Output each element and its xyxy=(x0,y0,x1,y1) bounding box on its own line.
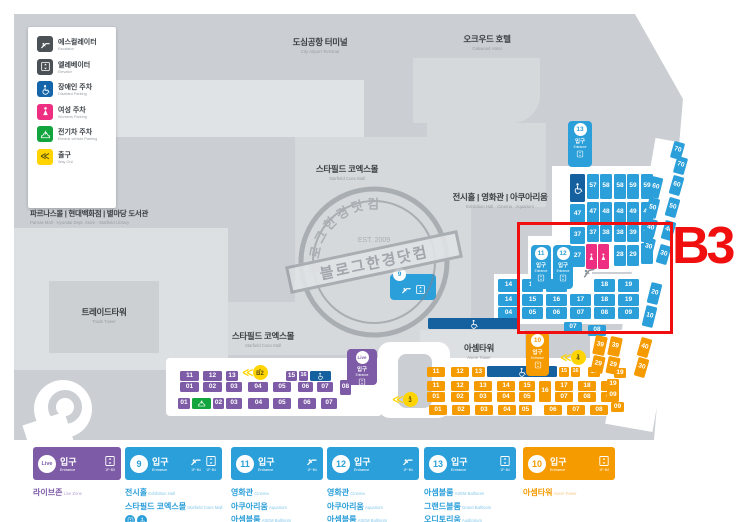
desc-en: Auditorium xyxy=(461,518,482,522)
banner-number: 9 xyxy=(130,455,148,473)
legend-label-ko: 전기차 주차 xyxy=(58,127,97,137)
escalator-icon: 1F~B4 xyxy=(190,455,202,472)
parking-cell: 04 xyxy=(248,382,268,392)
map-label-en: Oakwood Hotel xyxy=(463,46,510,51)
footer-banner-13: 13입구Entrance1F~B4 xyxy=(424,447,516,480)
exit-number: «B2 xyxy=(253,365,268,380)
map-label-en: Trade Tower xyxy=(81,319,126,324)
desc-en: ASEM Ballroom xyxy=(260,518,291,522)
parking-cell: 02 xyxy=(451,392,469,402)
entry-label-en: Entrance xyxy=(550,468,595,472)
elevator-icon xyxy=(576,150,584,158)
parking-cell: 48 xyxy=(600,202,612,223)
desc-ko: 아쿠아리움 xyxy=(231,502,268,511)
parking-cell: 48 xyxy=(614,202,626,223)
parking-cell: 58 xyxy=(614,174,626,199)
desc-ko: 영화관 xyxy=(327,488,349,497)
parking-cell: 09 xyxy=(611,402,624,412)
entry-label-en: Entrance xyxy=(574,145,587,149)
map-label-ko: 아셈타워 xyxy=(464,342,494,354)
map-label: 오크우드 호텔Oakwood Hotel xyxy=(463,33,510,51)
parking-cell: 15 xyxy=(519,381,535,391)
map-label-en: City Airport Terminal xyxy=(293,49,348,54)
parking-cell: 02 xyxy=(452,405,470,415)
parking-cell: 01 xyxy=(427,392,445,402)
parking-cell: 58 xyxy=(600,174,612,199)
exit-icon: ≪ xyxy=(37,149,53,165)
footer-desc-9: 전시홀 Exhibition Hall스타필드 코엑스몰 Starfield C… xyxy=(125,486,222,522)
exit-number: «4 xyxy=(571,350,586,365)
parking-cell: 16 xyxy=(539,381,551,402)
parking-cell: 07 xyxy=(321,398,337,409)
desc-en: Cinema xyxy=(349,491,365,496)
disabled-parking-cell xyxy=(310,371,331,381)
exit-chevrons-icon: ≪ xyxy=(242,366,252,379)
desc-ko: 전시홀 xyxy=(125,488,147,497)
elevator-icon xyxy=(358,378,366,386)
parking-cell: 59 xyxy=(627,174,639,199)
parking-cell: 01 xyxy=(429,405,447,415)
parking-cell: 06 xyxy=(544,405,562,415)
entry-label-ko: 입구 xyxy=(60,455,101,468)
desc-en: Starfield Coex Mall xyxy=(186,505,222,510)
parking-cell: 57 xyxy=(587,174,599,199)
parking-cell: 14 xyxy=(497,381,515,391)
banner-number: 10 xyxy=(528,455,546,473)
disabled-parking-cell xyxy=(570,174,585,202)
desc-en: Aquarium xyxy=(364,505,383,510)
parking-cell: 03 xyxy=(226,382,242,392)
elevator-icon xyxy=(534,361,542,369)
elevator-icon: 1F~B4 xyxy=(598,455,610,472)
building-oakwood-hotel xyxy=(413,58,540,123)
parking-cell: 19 xyxy=(614,368,626,378)
parking-cell: 11 xyxy=(180,371,199,381)
footer-desc-10: 아셈타워 Asem Tower xyxy=(523,486,577,500)
parking-cell: 01 xyxy=(178,398,190,409)
parking-cell: 05 xyxy=(273,398,291,409)
legend-label-ko: 여성 주차 xyxy=(58,105,87,115)
parking-cell: 14 xyxy=(498,279,519,292)
banner-number: 13 xyxy=(429,455,447,473)
women-icon xyxy=(37,104,53,120)
banner-number: 12 xyxy=(332,455,350,473)
desc-ko: 아셈타워 xyxy=(523,488,552,497)
parking-cell: 14 xyxy=(498,294,519,306)
map-label: 도심공항 터미널City Airport Terminal xyxy=(293,36,348,54)
parking-cell: 15 xyxy=(286,371,297,381)
entrance-marker-13: 13입구Entrance xyxy=(568,121,592,167)
parking-cell: 49 xyxy=(627,202,639,223)
legend-label-en: Way Out xyxy=(58,160,73,164)
map-label-en: Starfield Coex Mall xyxy=(232,343,294,348)
parking-cell: 13 xyxy=(472,367,485,377)
map-label-en: Asem Tower xyxy=(464,355,494,360)
parking-cell: 18 xyxy=(578,381,596,391)
disabled-icon xyxy=(37,81,53,97)
desc-ko: 아셈볼룸 xyxy=(231,515,260,522)
footer-desc-13: 아셈볼룸 ASEM Ballroom그랜드볼룸 Grand Ballroom오디… xyxy=(424,486,491,522)
exit-number: «3 xyxy=(403,392,418,407)
desc-ko: 아셈볼룸 xyxy=(327,515,356,522)
entry-label-ko: 입구 xyxy=(451,455,496,468)
parking-cell: 07 xyxy=(567,405,585,415)
entry-label-ko: 입구 xyxy=(532,348,542,356)
legend-item-elevator: 엘레베이터Elevator xyxy=(37,59,116,75)
exit-badge-b2: ≪«B2 xyxy=(242,365,268,380)
map-label: 전시홀 | 영화관 | 아쿠아리움Exhibition Hall · Cinem… xyxy=(452,191,547,209)
parking-cell: 19 xyxy=(607,379,619,389)
desc-ko: 그랜드볼룸 xyxy=(424,502,461,511)
entry-label-en: Entrance xyxy=(258,468,303,472)
legend-item-disabled: 장애인 주차Disabled Parking xyxy=(37,81,116,97)
map-label: 아셈타워Asem Tower xyxy=(464,342,494,360)
parking-cell: 03 xyxy=(474,392,492,402)
escalator-icon: 1F~B4 xyxy=(402,455,414,472)
desc-en: Exhibition Hall xyxy=(147,491,175,496)
parking-cell: 04 xyxy=(497,392,515,402)
map-label: 트레이드타워Trade Tower xyxy=(81,306,126,324)
entry-label-en: Entrance xyxy=(152,468,187,472)
exit-chevrons-icon: ≪ xyxy=(392,393,402,406)
map-label-ko: 스타필드 코엑스몰 xyxy=(232,330,294,342)
map-label-ko: 스타필드 코엑스몰 xyxy=(316,163,378,175)
entry-label-ko: 입구 xyxy=(258,455,303,468)
desc-en: ASEM Ballroom xyxy=(453,491,484,496)
legend-label-en: Disabled Parking xyxy=(58,92,92,96)
footer-banner-9: 9입구Entrance1F~B41F~B4 xyxy=(125,447,222,480)
map-label-ko: 전시홀 | 영화관 | 아쿠아리움 xyxy=(452,191,547,203)
parking-cell: 07 xyxy=(317,382,333,392)
footer-desc-11: 영화관 Cinema아쿠아리움 Aquarium아셈볼룸 ASEM Ballro… xyxy=(231,486,291,522)
floor-label-b3: B3 xyxy=(672,216,732,276)
map-label: 스타필드 코엑스몰Starfield Coex Mall xyxy=(232,330,294,348)
entry-label-ko: 입구 xyxy=(152,455,187,468)
entrance-number: Live xyxy=(356,351,369,364)
map-label: 스타필드 코엑스몰Starfield Coex Mall xyxy=(316,163,378,181)
parking-cell: 13 xyxy=(474,381,492,391)
parking-cell: 08 xyxy=(590,405,608,415)
desc-en: Asem Tower xyxy=(552,491,576,496)
parking-cell: 02 xyxy=(213,398,224,409)
parking-cell: 06 xyxy=(298,398,316,409)
legend-label-ko: 에스컬레이터 xyxy=(58,37,97,47)
parking-cell: 08 xyxy=(578,392,596,402)
entry-label-en: Entrance xyxy=(451,468,496,472)
parking-cell: 17 xyxy=(555,381,573,391)
parking-cell: 02 xyxy=(203,382,222,392)
legend-item-escalator: 에스컬레이터Escalator xyxy=(37,36,116,52)
entry-label-ko: 입구 xyxy=(354,455,399,468)
entrance-number: 10 xyxy=(531,334,544,347)
footer-desc-12: 영화관 Cinema아쿠아리움 Aquarium아셈볼룸 ASEM Ballro… xyxy=(327,486,387,522)
legend-label-ko: 출구 xyxy=(58,150,73,160)
parking-cell: 04 xyxy=(498,405,516,415)
entrance-marker-10: 10입구Entrance xyxy=(526,332,549,376)
legend-item-electric: 전기차 주차Electric vehicle Parking xyxy=(37,126,116,142)
desc-ko: 스타필드 코엑스몰 xyxy=(125,502,186,511)
desc-en: Grand Ballroom xyxy=(461,505,492,510)
parking-cell: 07 xyxy=(555,392,573,402)
parking-cell: 04 xyxy=(248,398,269,409)
entry-label-ko: 입구 xyxy=(550,455,595,468)
footer-banner-11: 11입구Entrance1F~B4 xyxy=(231,447,323,480)
electric-icon xyxy=(37,126,53,142)
map-label-ko: 오크우드 호텔 xyxy=(463,33,510,45)
legend-label-ko: 장애인 주차 xyxy=(58,82,92,92)
map-label-ko: 도심공항 터미널 xyxy=(293,36,348,48)
desc-ko: 오디토리움 xyxy=(424,515,461,522)
desc-ko: 아쿠아리움 xyxy=(327,502,364,511)
desc-ko: 라이브존 xyxy=(33,488,62,497)
entrance-marker-live: Live입구Entrance xyxy=(347,349,377,385)
desc-ko: 영화관 xyxy=(231,488,253,497)
parking-cell: 16 xyxy=(299,371,308,381)
map-label-ko: 파르나스몰 | 현대백화점 | 별마당 도서관 xyxy=(30,208,190,219)
entry-label-ko: 입구 xyxy=(575,137,585,145)
entry-label-en: Entrance xyxy=(356,373,369,377)
disabled-icon xyxy=(137,515,147,522)
parking-cell: 06 xyxy=(298,382,313,392)
elevator-icon: 1F~B4 xyxy=(499,455,511,472)
parking-cell: 03 xyxy=(475,405,493,415)
parking-cell: 11 xyxy=(427,381,445,391)
entry-label-ko: 입구 xyxy=(357,365,367,373)
parking-cell: 12 xyxy=(203,371,222,381)
footer-banner-live: Live입구Entrance1F~B3 xyxy=(33,447,121,480)
legend-label-en: Escalator xyxy=(58,47,97,51)
banner-number: 11 xyxy=(236,455,254,473)
legend-item-exit: ≪출구Way Out xyxy=(37,149,116,165)
parking-cell: 03 xyxy=(226,398,242,409)
exit-chevrons-icon: ≪ xyxy=(560,351,570,364)
parking-cell: 12 xyxy=(451,381,469,391)
building-city-airport-terminal xyxy=(96,80,364,137)
electric-parking-cell xyxy=(192,398,211,409)
parking-cell: 11 xyxy=(427,367,445,377)
elevator-icon xyxy=(125,515,135,522)
footer-banner-12: 12입구Entrance1F~B4 xyxy=(327,447,419,480)
legend-label-en: Electric vehicle Parking xyxy=(58,137,97,141)
exit-badge-3: ≪«3 xyxy=(392,392,418,407)
map-label-ko: 트레이드타워 xyxy=(81,306,126,318)
legend-label-en: Womens Parking xyxy=(58,115,87,119)
desc-ko: 아셈볼룸 xyxy=(424,488,453,497)
watermark-stamp: 블로그한경닷컴 EST. 2009 블로그한경닷컴 xyxy=(296,184,452,340)
parking-cell: 05 xyxy=(273,382,291,392)
entrance-number: 13 xyxy=(574,123,587,136)
entry-label-en: Entrance xyxy=(60,468,101,472)
parking-map-page: 에스컬레이터Escalator엘레베이터Elevator장애인 주차Disabl… xyxy=(0,0,740,522)
entry-label-en: Entrance xyxy=(354,468,399,472)
parking-cell: 13 xyxy=(226,371,238,381)
b3-highlight-box xyxy=(517,222,673,334)
map-label: 파르나스몰 | 현대백화점 | 별마당 도서관Parnas Mall · Hyu… xyxy=(30,208,190,225)
map-label-en: Exhibition Hall · Cinema · Aquarium xyxy=(452,204,547,209)
legend-label-ko: 엘레베이터 xyxy=(58,60,90,70)
parking-cell: 16 xyxy=(571,367,580,377)
entry-label-en: Entrance xyxy=(531,356,544,360)
stamp-est-text: EST. 2009 xyxy=(358,237,390,244)
elevator-icon xyxy=(37,59,53,75)
escalator-icon xyxy=(37,36,53,52)
parking-cell: 12 xyxy=(451,367,469,377)
parking-cell: 05 xyxy=(519,392,535,402)
banner-number: Live xyxy=(38,455,56,473)
desc-en: ASEM Ballroom xyxy=(356,518,387,522)
elevator-icon: 1F~B4 xyxy=(205,455,217,472)
parking-cell: 09 xyxy=(607,390,619,400)
parking-cell: 47 xyxy=(587,202,599,223)
desc-en: Cinema xyxy=(253,491,269,496)
map-label-en: Parnas Mall · Hyundai Dept. Store · Star… xyxy=(30,220,190,225)
exit-badge-4: ≪«4 xyxy=(560,350,586,365)
legend-label-en: Elevator xyxy=(58,70,90,74)
parking-cell: 01 xyxy=(180,382,199,392)
elevator-icon: 1F~B3 xyxy=(104,455,116,472)
desc-en: Live Zone xyxy=(62,491,82,496)
parking-cell: 05 xyxy=(519,405,532,415)
legend-panel: 에스컬레이터Escalator엘레베이터Elevator장애인 주차Disabl… xyxy=(28,27,116,208)
legend-item-women: 여성 주차Womens Parking xyxy=(37,104,116,120)
escalator-icon: 1F~B4 xyxy=(306,455,318,472)
footer-banner-10: 10입구Entrance1F~B4 xyxy=(523,447,615,480)
desc-en: Aquarium xyxy=(268,505,287,510)
footer-desc-live: 라이브존 Live Zone xyxy=(33,486,82,500)
map-label-en: Starfield Coex Mall xyxy=(316,176,378,181)
parking-cell: 15 xyxy=(559,367,569,377)
